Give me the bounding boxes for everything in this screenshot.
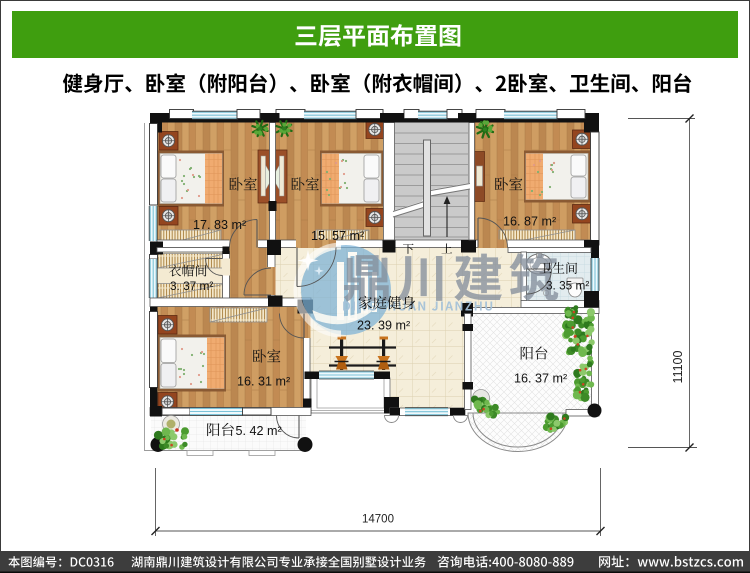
svg-text:5. 42 m²: 5. 42 m² bbox=[236, 424, 282, 438]
svg-text:17. 83 m²: 17. 83 m² bbox=[193, 218, 246, 232]
svg-text:23. 39 m²: 23. 39 m² bbox=[357, 319, 410, 333]
svg-text:11100: 11100 bbox=[671, 351, 685, 384]
svg-text:16. 37 m²: 16. 37 m² bbox=[514, 372, 567, 386]
svg-text:16. 31 m²: 16. 31 m² bbox=[237, 375, 290, 389]
svg-text:3. 35 m²: 3. 35 m² bbox=[546, 279, 589, 293]
svg-text:3. 37 m²: 3. 37 m² bbox=[170, 279, 213, 293]
svg-text:14700: 14700 bbox=[362, 514, 394, 526]
svg-text:16. 87 m²: 16. 87 m² bbox=[503, 215, 556, 229]
svg-text:15. 57 m²: 15. 57 m² bbox=[311, 229, 364, 243]
